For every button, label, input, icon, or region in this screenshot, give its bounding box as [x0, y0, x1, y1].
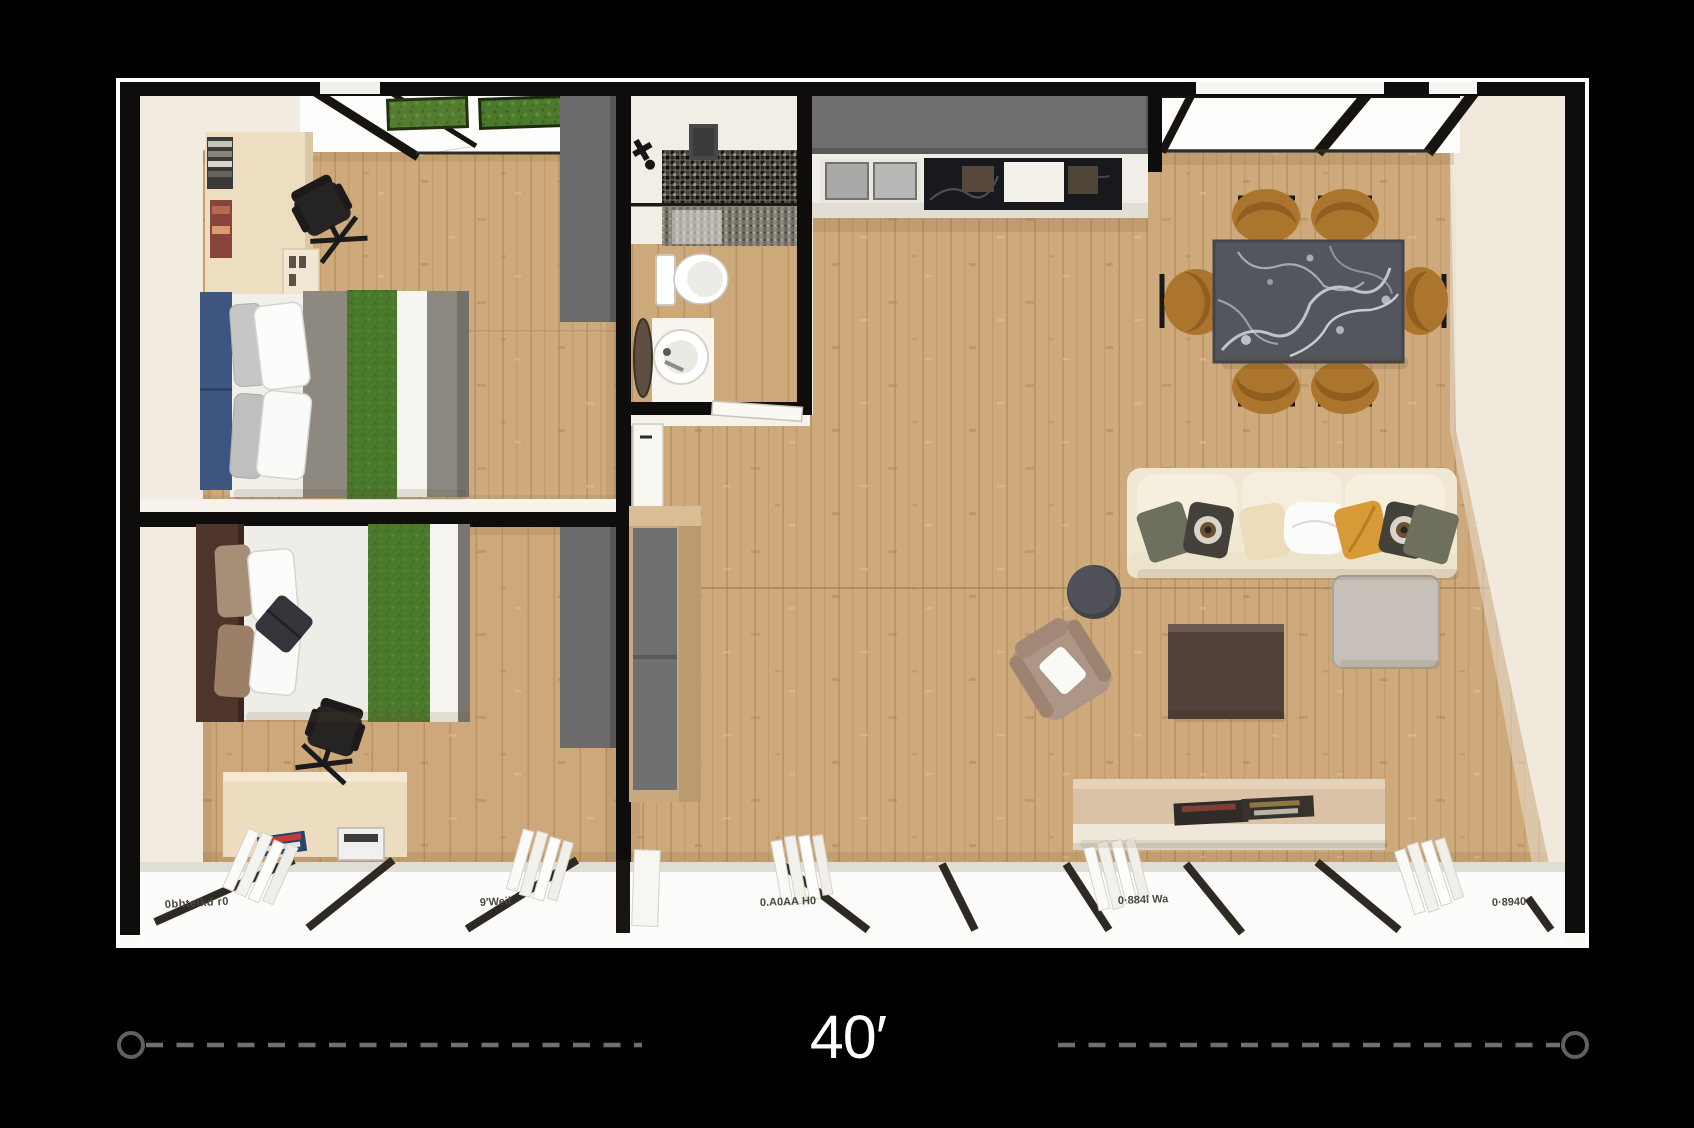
svg-text:0.A0AA H0: 0.A0AA H0	[760, 895, 817, 909]
svg-text:9′Weil: 9′Weil	[480, 895, 512, 909]
svg-text:0·884l Wa: 0·884l Wa	[1118, 893, 1170, 907]
svg-text:0·8940: 0·8940	[1492, 896, 1527, 909]
svg-text:40′: 40′	[810, 1003, 887, 1071]
